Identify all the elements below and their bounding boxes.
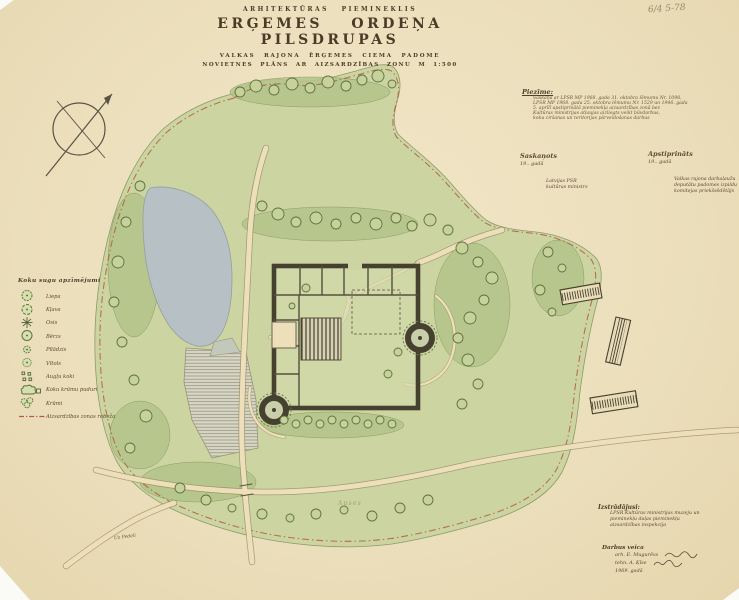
north-arrow-icon [46,94,112,176]
developer-line: aizsardzības inspekcija [598,523,736,529]
legend-item-label: Liepa [46,294,61,300]
approval-right-signatory: Valkas rajona darbaļaužu [674,177,737,183]
developer-heading: Izstrādājusi: [598,504,736,511]
grove-label: Apses [338,500,362,507]
note-line: koku ciršanas un teritorijas pārveidošan… [522,116,734,121]
approval-left-signatory: kultūras ministrs [546,185,588,191]
approval-right-heading: Apstiprināts [648,150,737,158]
author-name: arh. E. Mugurēvs [615,552,658,558]
legend-item-label: Pīlādzis [46,347,66,353]
legend-item-label: Augļu koki [46,374,74,380]
approval-right-signatory: komitejas priekšsēdētājs [674,189,737,195]
legend-item-label: Aizsardzības zonas robeža [46,414,115,420]
legend-heading: Koku sugu apzīmējumi [18,278,168,284]
note-block: Piezīme: Saskaņā ar LPSR MP 1968. gada 3… [522,88,734,121]
approval-left-block: Saskaņots 19.. gadā Latvijas PSR kultūra… [520,152,588,191]
legend-item-label: Osis [46,320,57,326]
signature-icon [664,551,698,559]
approval-left-heading: Saskaņots [520,152,588,160]
work-year: 1969. gadā [602,568,738,574]
approval-right-block: Apstiprināts 19.. gadā Valkas rajona dar… [648,150,737,194]
author-name: tehn. A. Ķīse [615,560,647,566]
legend: Koku sugu apzīmējumi Liepa Kļava Osis Bē… [18,278,168,424]
legend-item-label: Koku krūmu puduri [46,387,97,393]
approval-right-signatory: deputātu padomes izpildu [674,183,737,189]
title-block: ARHITEKTŪRAS PIEMINEKLIS ERĢEMES ORDEŅA … [160,6,500,68]
legend-item-label: Kļava [46,307,61,313]
author-row: arh. E. Mugurēvs [602,551,738,559]
document-subtitle-1: VALKAS RAJONA ĒRĢEMES CIEMA PADOME [160,53,500,59]
castle-ruins [257,261,437,427]
document-subtitle-2: NOVIETNES PLĀNS AR AIZSARDZĪBAS ZONU M 1… [160,62,500,68]
legend-item-label: Bērzs [46,334,61,340]
signature-icon [653,559,683,568]
legend-item-label: Vītols [46,361,61,367]
protection-boundary-icon [18,408,46,427]
authors-block: Darbus veica arh. E. Mugurēvs tehn. A. Ķ… [602,545,738,574]
document-supertitle: ARHITEKTŪRAS PIEMINEKLIS [160,6,500,13]
plan-sheet: ARHITEKTŪRAS PIEMINEKLIS ERĢEMES ORDEŅA … [0,0,739,600]
approval-right-year: 19.. gadā [648,159,737,165]
legend-item: Aizsardzības zonas robeža [18,411,168,424]
note-heading: Piezīme: [522,88,734,96]
document-title: ERĢEMES ORDEŅA PILSDRUPAS [160,16,500,48]
approval-left-year: 19.. gadā [520,161,588,167]
developer-block: Izstrādājusi: LPSR Kultūras ministrijas … [598,504,736,528]
author-row: tehn. A. Ķīse [602,559,738,568]
legend-item-label: Krūmi [46,401,62,407]
